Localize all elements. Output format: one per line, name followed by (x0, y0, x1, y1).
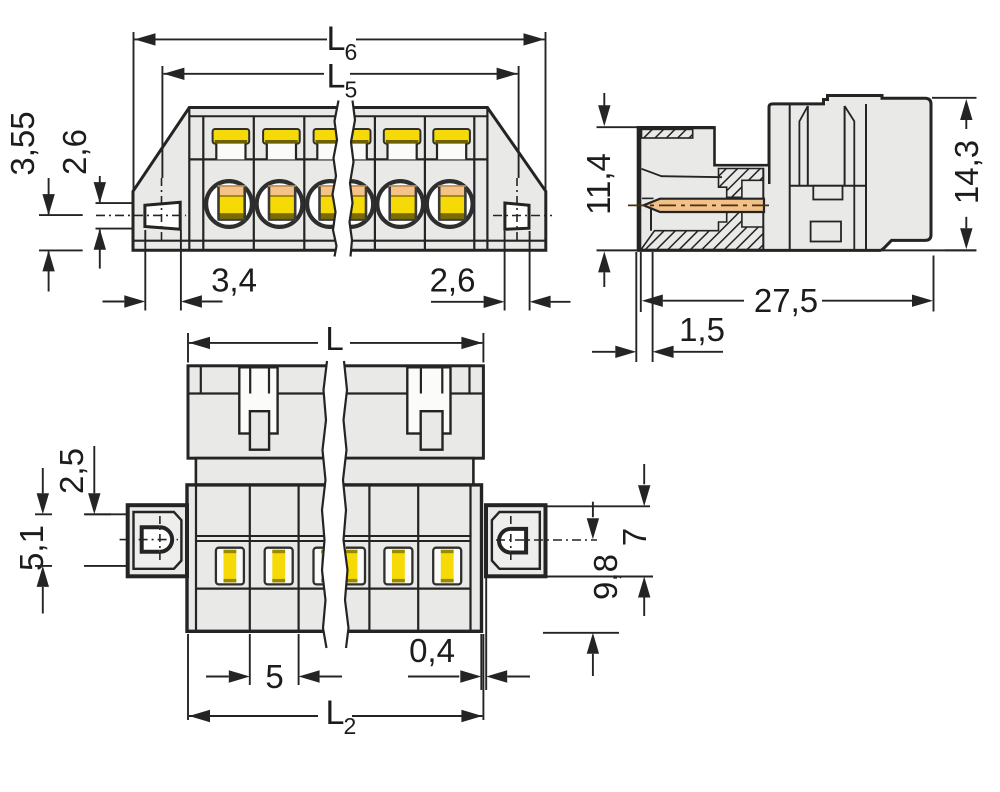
svg-text:3,4: 3,4 (211, 262, 257, 299)
svg-text:5: 5 (345, 77, 358, 103)
svg-text:0,4: 0,4 (409, 632, 455, 669)
svg-text:7: 7 (616, 528, 653, 546)
svg-text:2: 2 (344, 713, 357, 739)
svg-text:5,1: 5,1 (13, 525, 50, 571)
svg-text:3,55: 3,55 (4, 111, 41, 175)
svg-text:2,5: 2,5 (53, 448, 90, 494)
svg-text:6: 6 (345, 39, 358, 65)
svg-text:L: L (327, 58, 346, 96)
svg-text:1,5: 1,5 (679, 311, 725, 348)
svg-text:L: L (326, 694, 345, 732)
svg-text:27,5: 27,5 (754, 282, 818, 319)
svg-text:L: L (327, 20, 346, 58)
svg-text:11,4: 11,4 (580, 153, 617, 215)
svg-text:14,3: 14,3 (948, 140, 985, 204)
svg-text:2,6: 2,6 (56, 129, 93, 175)
svg-text:5: 5 (265, 658, 283, 695)
svg-text:L: L (325, 320, 343, 357)
svg-text:2,6: 2,6 (430, 262, 476, 299)
